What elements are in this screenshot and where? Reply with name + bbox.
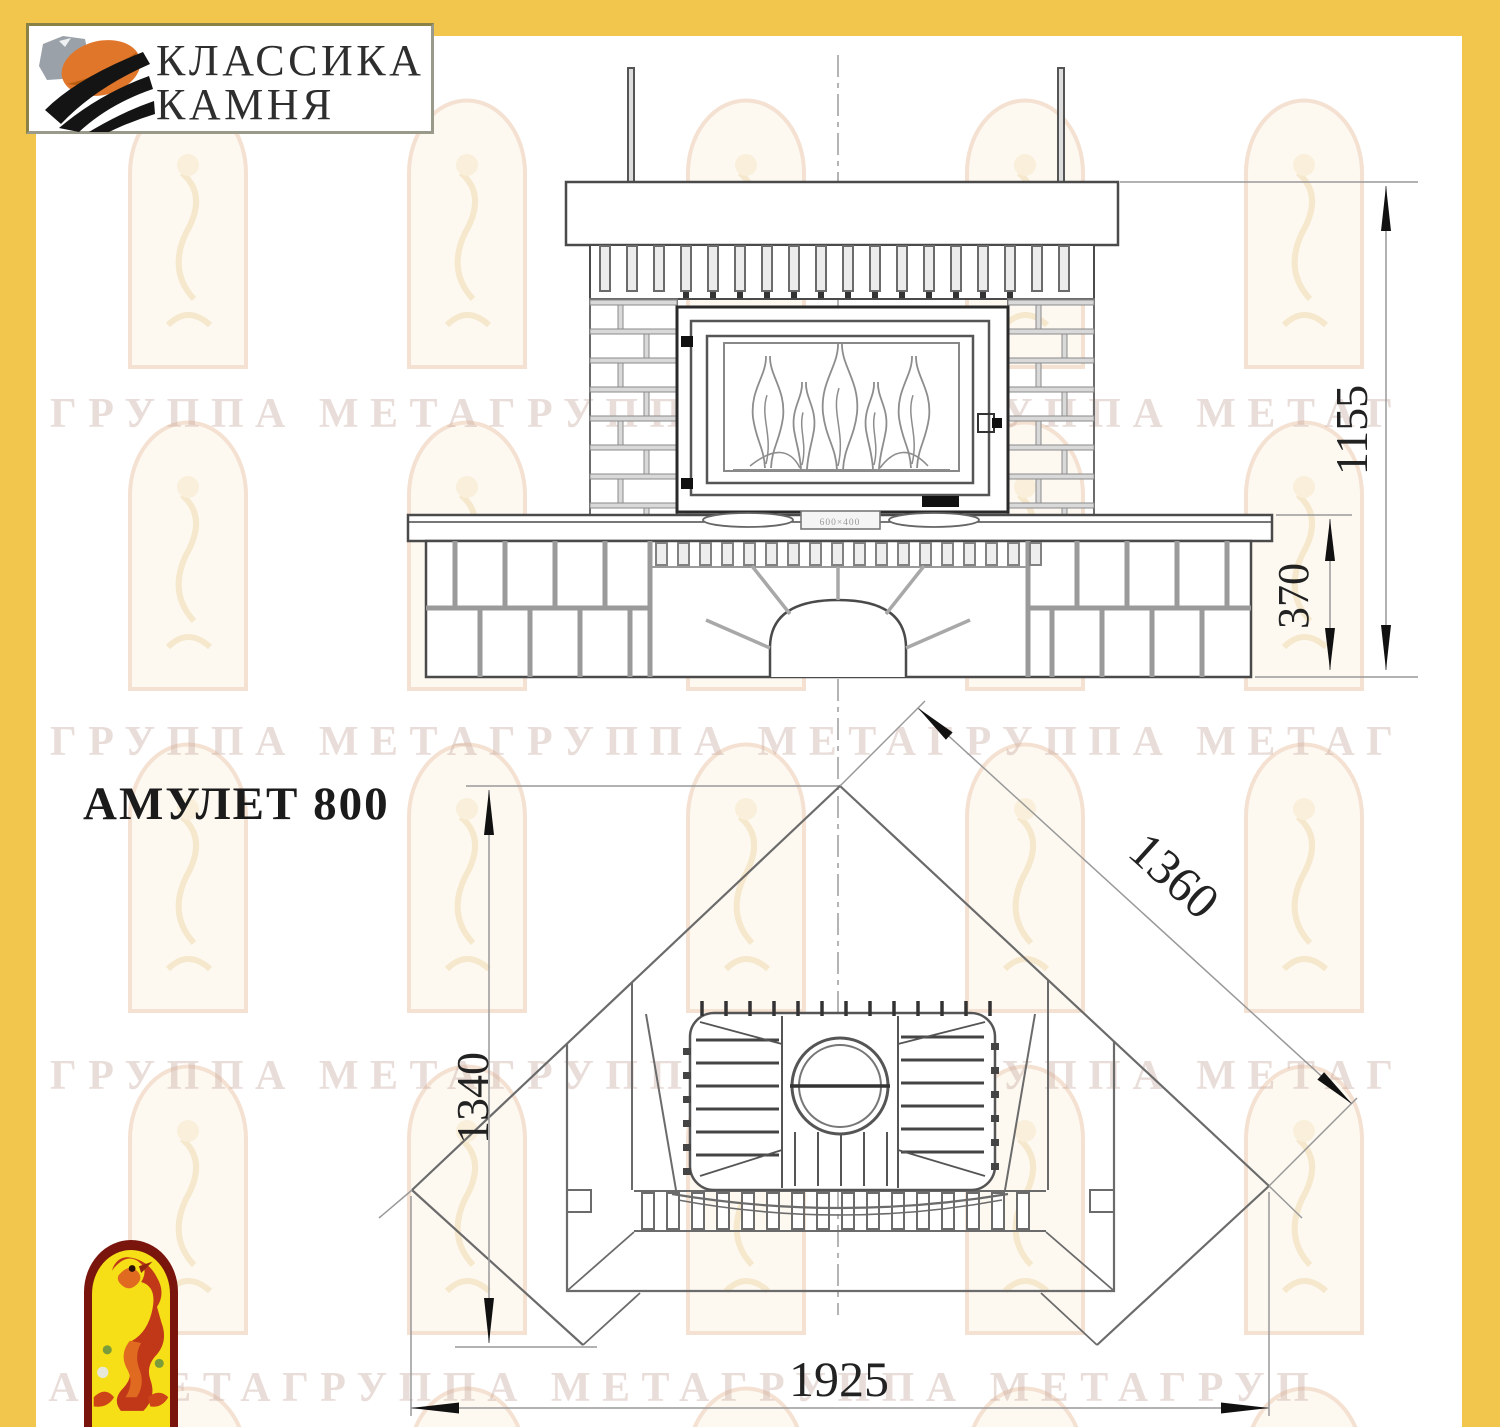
svg-text:1925: 1925 (789, 1351, 889, 1407)
svg-text:1360: 1360 (1118, 821, 1230, 930)
svg-text:1155: 1155 (1326, 385, 1377, 475)
svg-text:1340: 1340 (447, 1052, 498, 1144)
svg-text:600×400: 600×400 (820, 518, 861, 528)
svg-text:370: 370 (1269, 563, 1318, 629)
